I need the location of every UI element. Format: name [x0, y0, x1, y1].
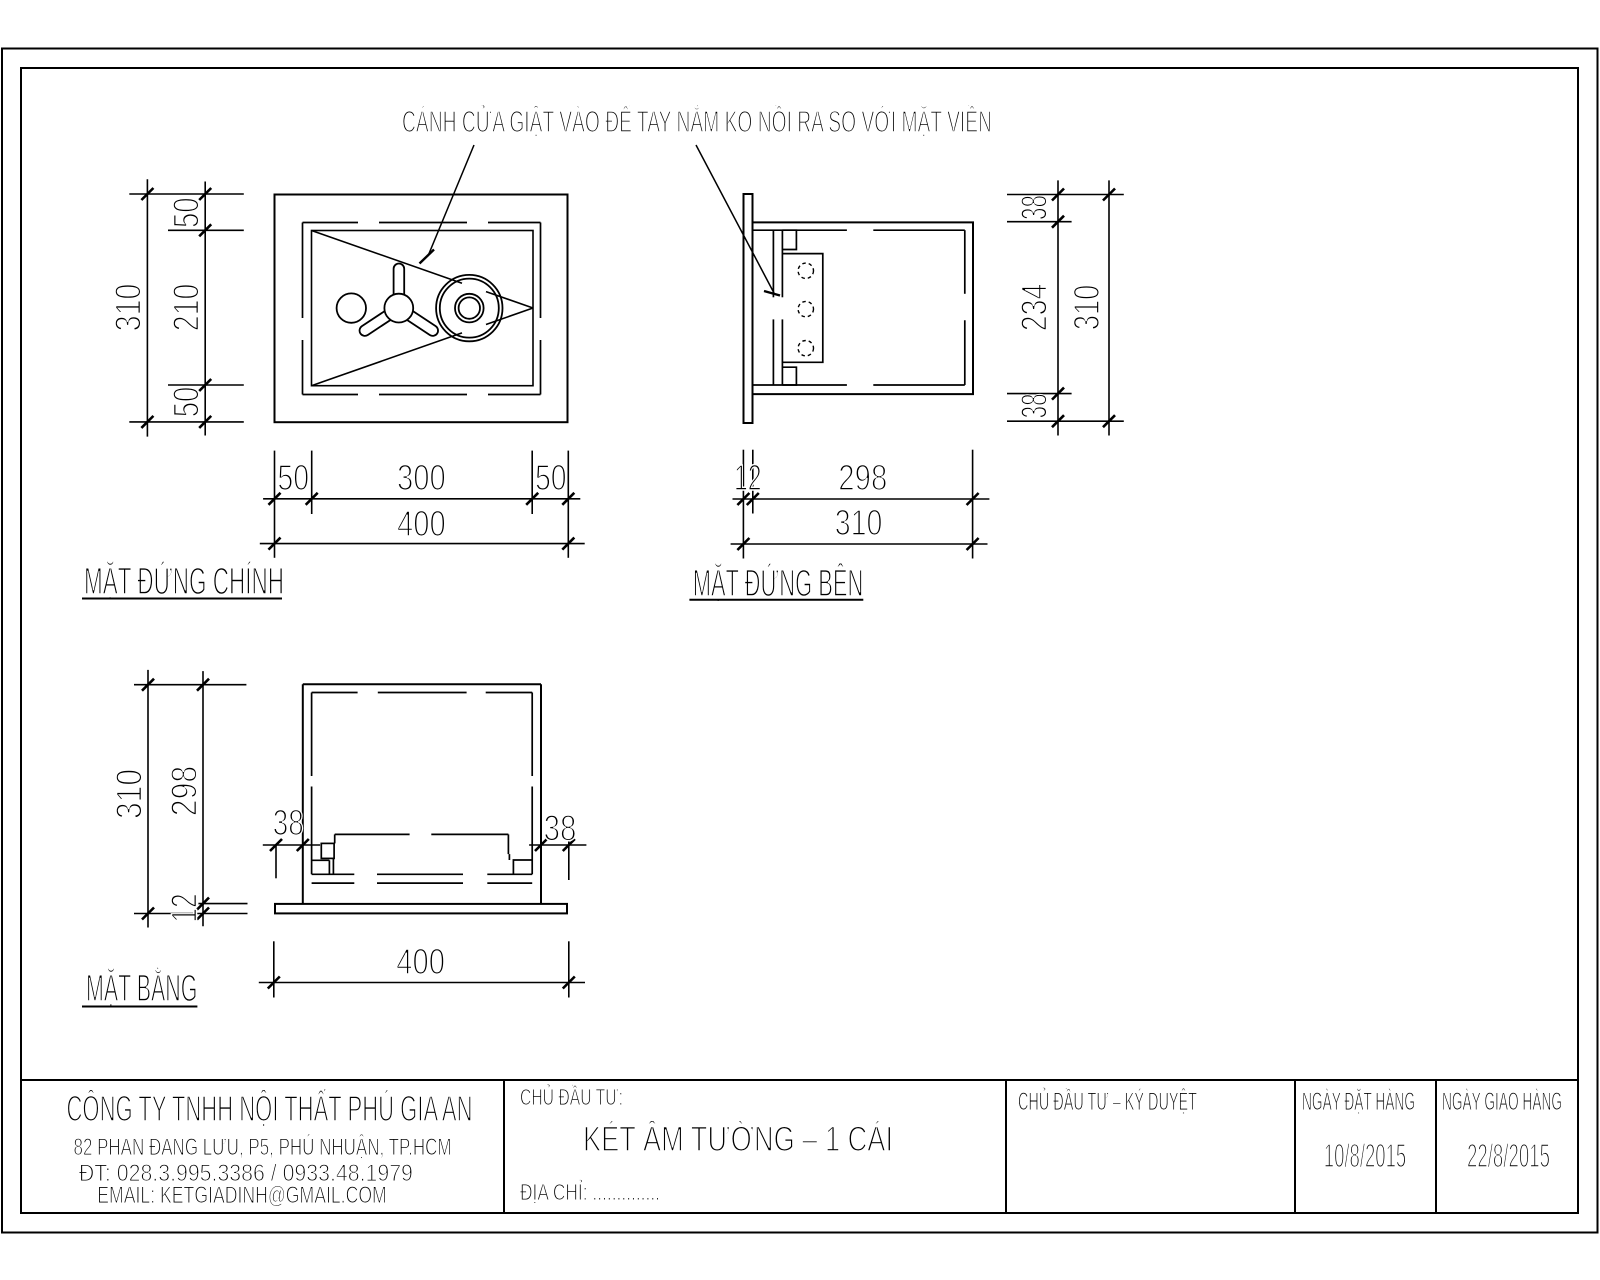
- svg-text:310: 310: [1066, 285, 1107, 330]
- svg-text:NGÀY ĐẶT HÀNG: NGÀY ĐẶT HÀNG: [1302, 1087, 1415, 1116]
- svg-text:310: 310: [835, 502, 883, 543]
- svg-text:MẶT ĐỨNG BÊN: MẶT ĐỨNG BÊN: [693, 562, 864, 605]
- svg-text:300: 300: [397, 457, 446, 498]
- svg-text:CHỦ ĐẦU TƯ:: CHỦ ĐẦU TƯ:: [520, 1082, 623, 1110]
- svg-text:50: 50: [277, 457, 309, 498]
- svg-text:ĐỊA CHỈ: ..............: ĐỊA CHỈ: ..............: [520, 1177, 660, 1205]
- svg-text:400: 400: [397, 503, 446, 544]
- svg-text:38: 38: [1014, 195, 1055, 220]
- svg-text:82 PHAN ĐANG LƯU, P5, PHÚ NHUẬ: 82 PHAN ĐANG LƯU, P5, PHÚ NHUẬN, TP.HCM: [74, 1134, 452, 1161]
- svg-text:12: 12: [734, 457, 762, 498]
- svg-text:12: 12: [164, 893, 205, 922]
- svg-text:310: 310: [108, 284, 149, 332]
- svg-text:50: 50: [165, 387, 206, 418]
- svg-text:EMAIL: KETGIADINH@GMAIL.COM: EMAIL: KETGIADINH@GMAIL.COM: [97, 1182, 387, 1209]
- svg-text:KÉT ÂM TƯỜNG – 1 CÁI: KÉT ÂM TƯỜNG – 1 CÁI: [583, 1120, 893, 1159]
- svg-text:CHỦ ĐẦU TƯ – KÝ DUYỆT: CHỦ ĐẦU TƯ – KÝ DUYỆT: [1018, 1086, 1197, 1116]
- svg-text:NGÀY GIAO HÀNG: NGÀY GIAO HÀNG: [1442, 1087, 1562, 1116]
- svg-text:10/8/2015: 10/8/2015: [1324, 1137, 1407, 1174]
- svg-text:MẶT ĐỨNG CHÍNH: MẶT ĐỨNG CHÍNH: [84, 560, 284, 603]
- svg-text:400: 400: [396, 941, 445, 982]
- svg-text:22/8/2015: 22/8/2015: [1467, 1137, 1550, 1174]
- svg-text:CÁNH CỬA GIẬT VÀO ĐỂ TAY NẮM K: CÁNH CỬA GIẬT VÀO ĐỂ TAY NẮM KO NỒI RA S…: [402, 103, 992, 139]
- svg-text:38: 38: [544, 807, 577, 848]
- svg-text:234: 234: [1014, 284, 1055, 332]
- svg-text:CÔNG TY TNHH NỘI THẤT PHÚ GIA: CÔNG TY TNHH NỘI THẤT PHÚ GIA AN: [67, 1088, 473, 1129]
- svg-text:50: 50: [535, 457, 567, 498]
- svg-text:310: 310: [109, 769, 150, 819]
- svg-text:MẶT BẰNG: MẶT BẰNG: [86, 966, 197, 1010]
- svg-text:210: 210: [165, 284, 206, 332]
- svg-text:38: 38: [1014, 393, 1055, 418]
- svg-text:38: 38: [273, 802, 304, 843]
- svg-text:298: 298: [838, 457, 887, 498]
- svg-text:50: 50: [165, 197, 206, 228]
- svg-text:298: 298: [164, 766, 205, 816]
